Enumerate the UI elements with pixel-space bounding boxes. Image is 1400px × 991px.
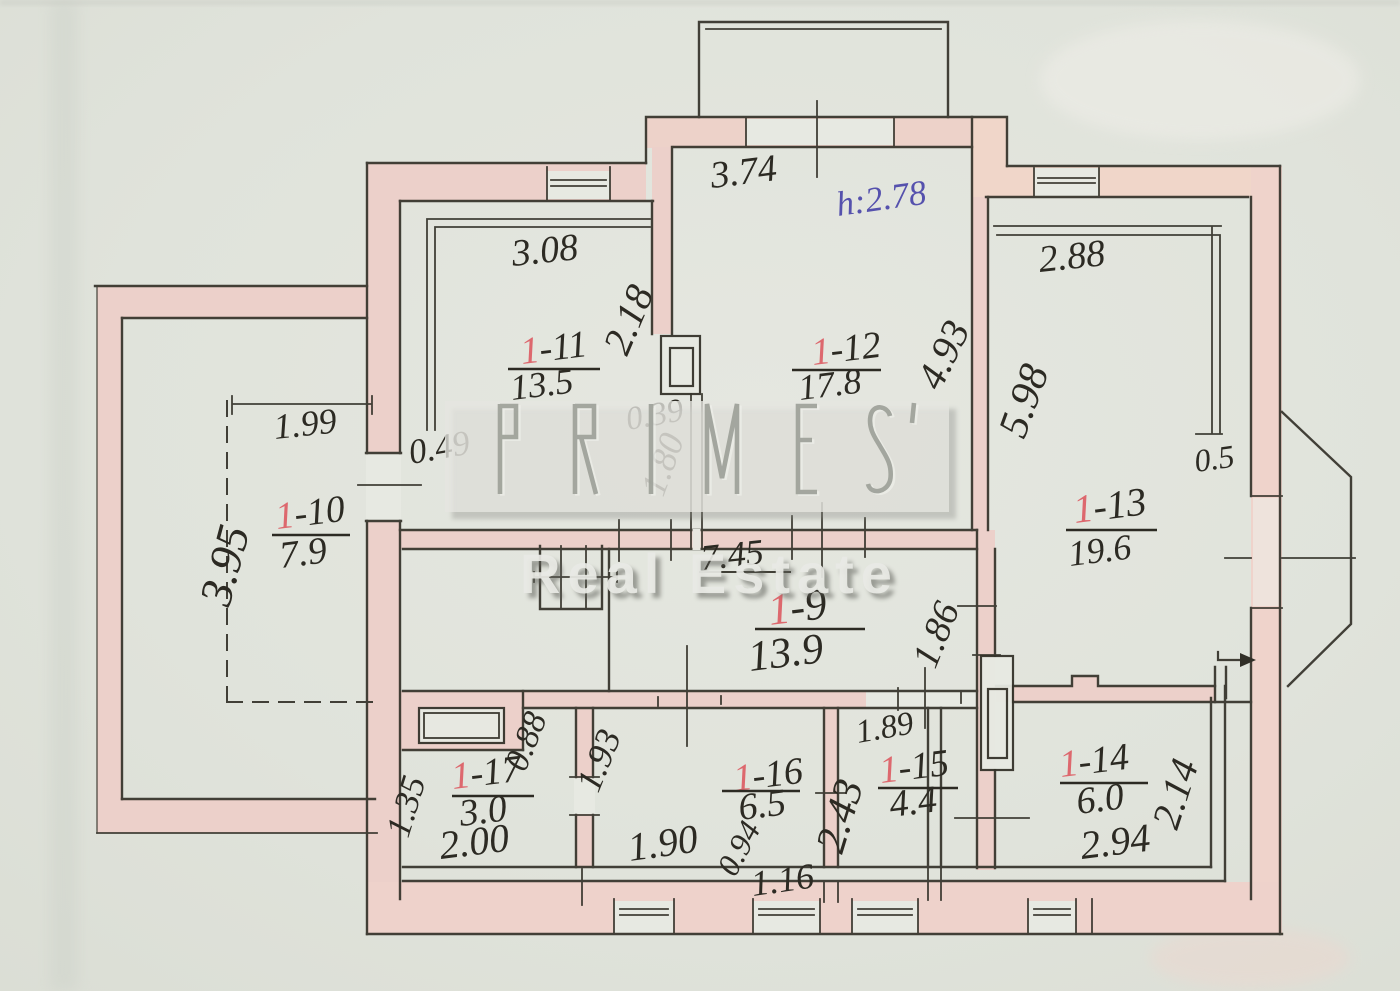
svg-text:13.9: 13.9 <box>745 625 825 681</box>
svg-text:3.08: 3.08 <box>509 226 581 275</box>
svg-text:13.5: 13.5 <box>508 361 575 408</box>
svg-text:3.74: 3.74 <box>707 147 779 197</box>
svg-text:2.94: 2.94 <box>1078 815 1153 868</box>
svg-text:2.88: 2.88 <box>1037 232 1108 281</box>
svg-text:Real Estate: Real Estate <box>520 542 899 605</box>
svg-text:0.5: 0.5 <box>1192 438 1237 479</box>
svg-text:4.4: 4.4 <box>887 778 939 825</box>
svg-text:17.8: 17.8 <box>796 361 863 408</box>
svg-text:19.6: 19.6 <box>1066 527 1133 574</box>
svg-text:6.5: 6.5 <box>736 781 788 828</box>
svg-text:1-13: 1-13 <box>1071 478 1149 532</box>
svg-text:3.0: 3.0 <box>456 787 509 835</box>
svg-text:1.99: 1.99 <box>272 401 339 447</box>
svg-text:7.9: 7.9 <box>277 529 329 576</box>
